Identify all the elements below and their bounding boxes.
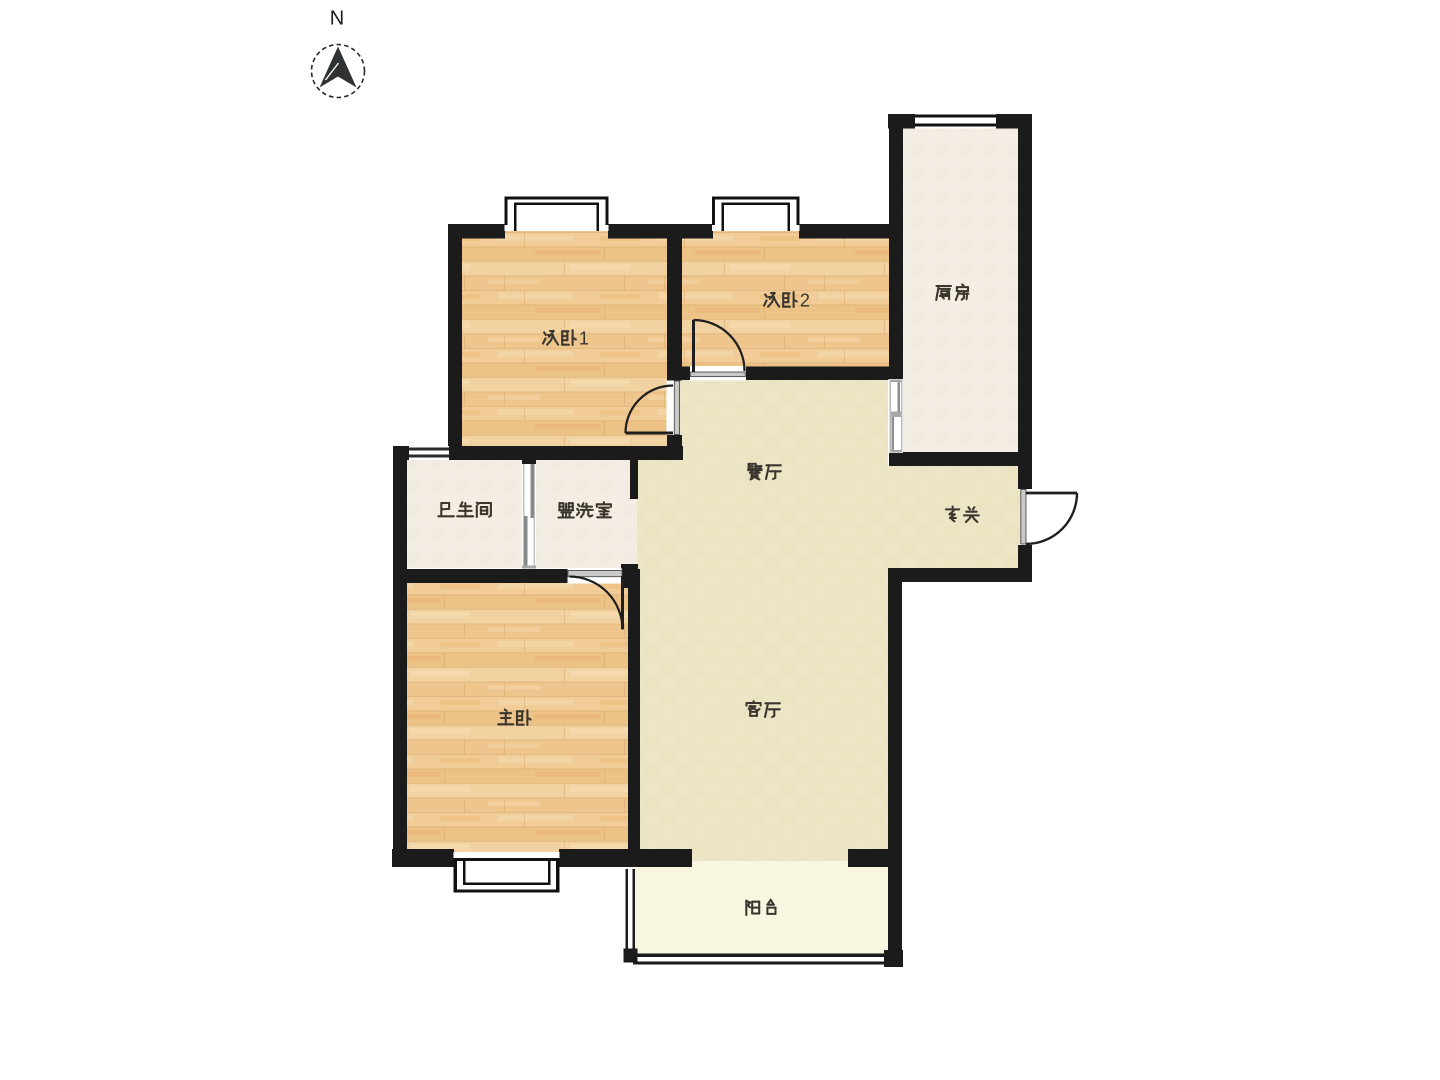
svg-text:N: N (330, 8, 344, 30)
svg-text:1: 1 (579, 329, 589, 349)
svg-text:2: 2 (800, 291, 810, 311)
